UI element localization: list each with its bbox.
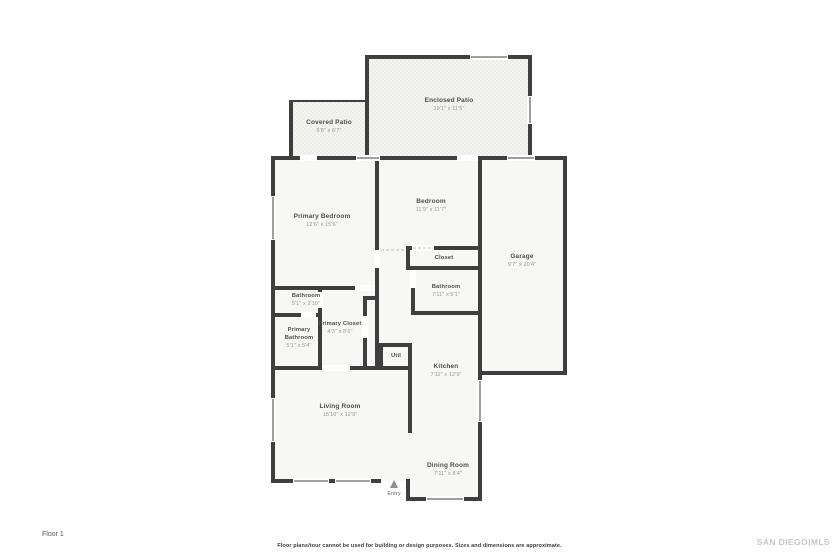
floorplan-drawing — [0, 0, 839, 560]
floor-label: Floor 1 — [42, 531, 64, 538]
room-floor-fills — [273, 158, 565, 499]
patio-fills — [291, 57, 528, 156]
mls-watermark: SAN DIEGO|MLS — [757, 537, 830, 547]
entry-arrow-icon — [390, 480, 398, 488]
floorplan-page: Enclosed Patio 19'1" x 11'5" Covered Pat… — [0, 0, 839, 560]
disclaimer-text: Floor plans/tour cannot be used for buil… — [0, 543, 839, 549]
